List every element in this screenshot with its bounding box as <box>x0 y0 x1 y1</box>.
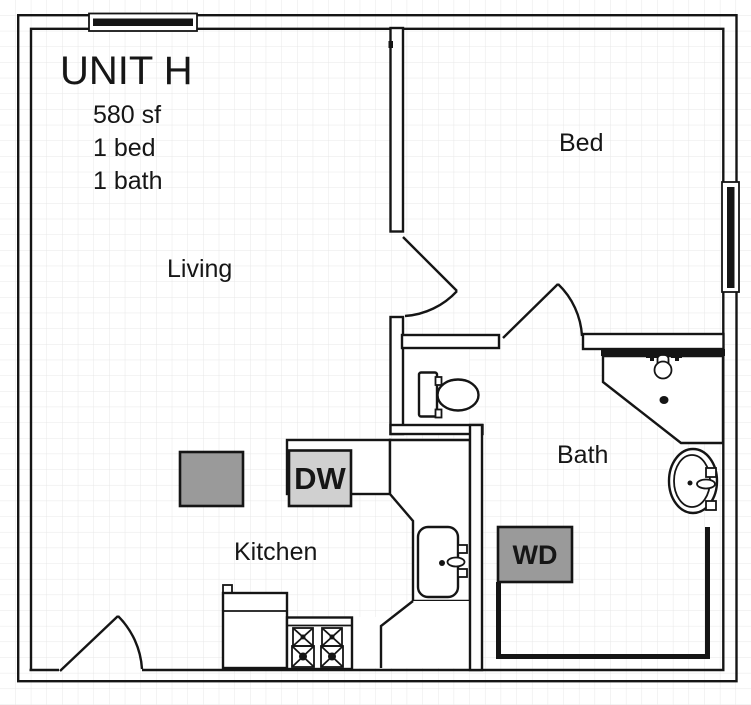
unit-title: UNIT H <box>60 49 193 93</box>
bath-wall-right <box>583 334 724 349</box>
stove <box>287 618 352 670</box>
table-box <box>180 452 243 506</box>
room-divider-wall <box>391 28 404 232</box>
unit-beds: 1 bed <box>93 134 156 162</box>
label-washer-dryer: WD <box>513 540 558 570</box>
kitchen-faucet-icon <box>448 558 465 567</box>
floorplan-canvas: DW WD UNIT H 580 sf 1 bed 1 bath Living … <box>0 0 751 705</box>
unit-area: 580 sf <box>93 101 161 129</box>
divider-wall-nub <box>389 41 394 48</box>
washer-dryer-box: WD <box>498 527 572 582</box>
window-top <box>89 14 197 32</box>
label-bed: Bed <box>559 129 603 157</box>
dishwasher-box: DW <box>289 451 351 507</box>
window-right <box>722 182 739 292</box>
shower-drain <box>660 396 669 404</box>
label-living: Living <box>167 255 232 283</box>
label-dishwasher: DW <box>294 461 346 496</box>
label-bath: Bath <box>557 441 608 469</box>
bath-wall-left <box>402 335 499 348</box>
fridge <box>223 585 287 668</box>
kitchen-wall <box>470 425 482 670</box>
unit-baths: 1 bath <box>93 167 163 195</box>
bath-faucet-icon <box>697 480 715 489</box>
bath-sink <box>669 449 717 513</box>
label-kitchen: Kitchen <box>234 538 317 566</box>
